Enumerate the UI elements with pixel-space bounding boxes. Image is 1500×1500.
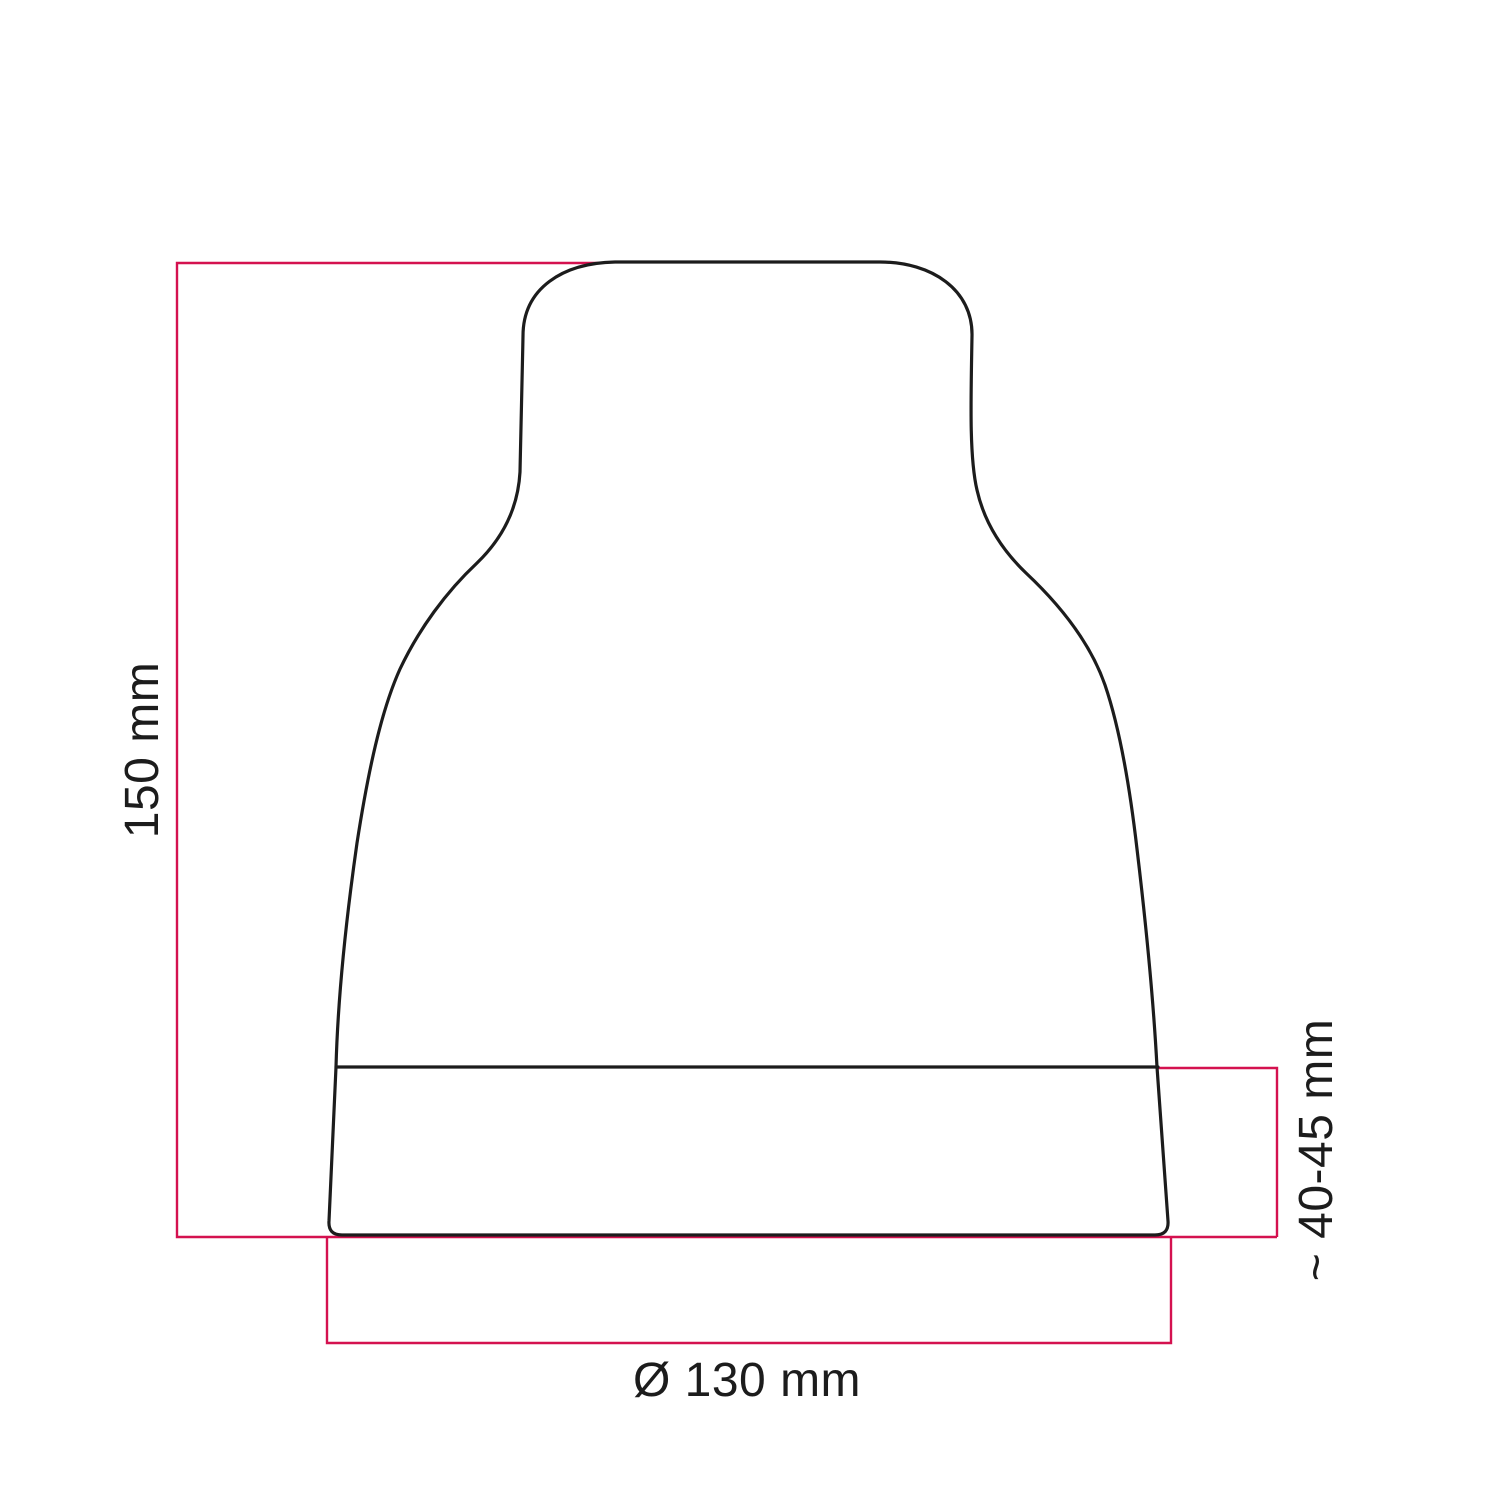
base-height-dimension-label: ~ 40-45 mm <box>1290 1019 1343 1281</box>
lampshade-outline-group <box>329 262 1168 1235</box>
lampshade-outline <box>329 262 1168 1235</box>
dimension-diagram: 150 mm ~ 40-45 mm Ø 130 mm <box>0 0 1500 1500</box>
diameter-dimension-line <box>327 1237 1171 1343</box>
height-dimension-label: 150 mm <box>116 662 169 838</box>
lampshade-drawing: 150 mm ~ 40-45 mm Ø 130 mm <box>0 0 1500 1500</box>
base-height-dimension-line <box>1158 1068 1277 1237</box>
diameter-dimension-label: Ø 130 mm <box>633 1354 861 1407</box>
